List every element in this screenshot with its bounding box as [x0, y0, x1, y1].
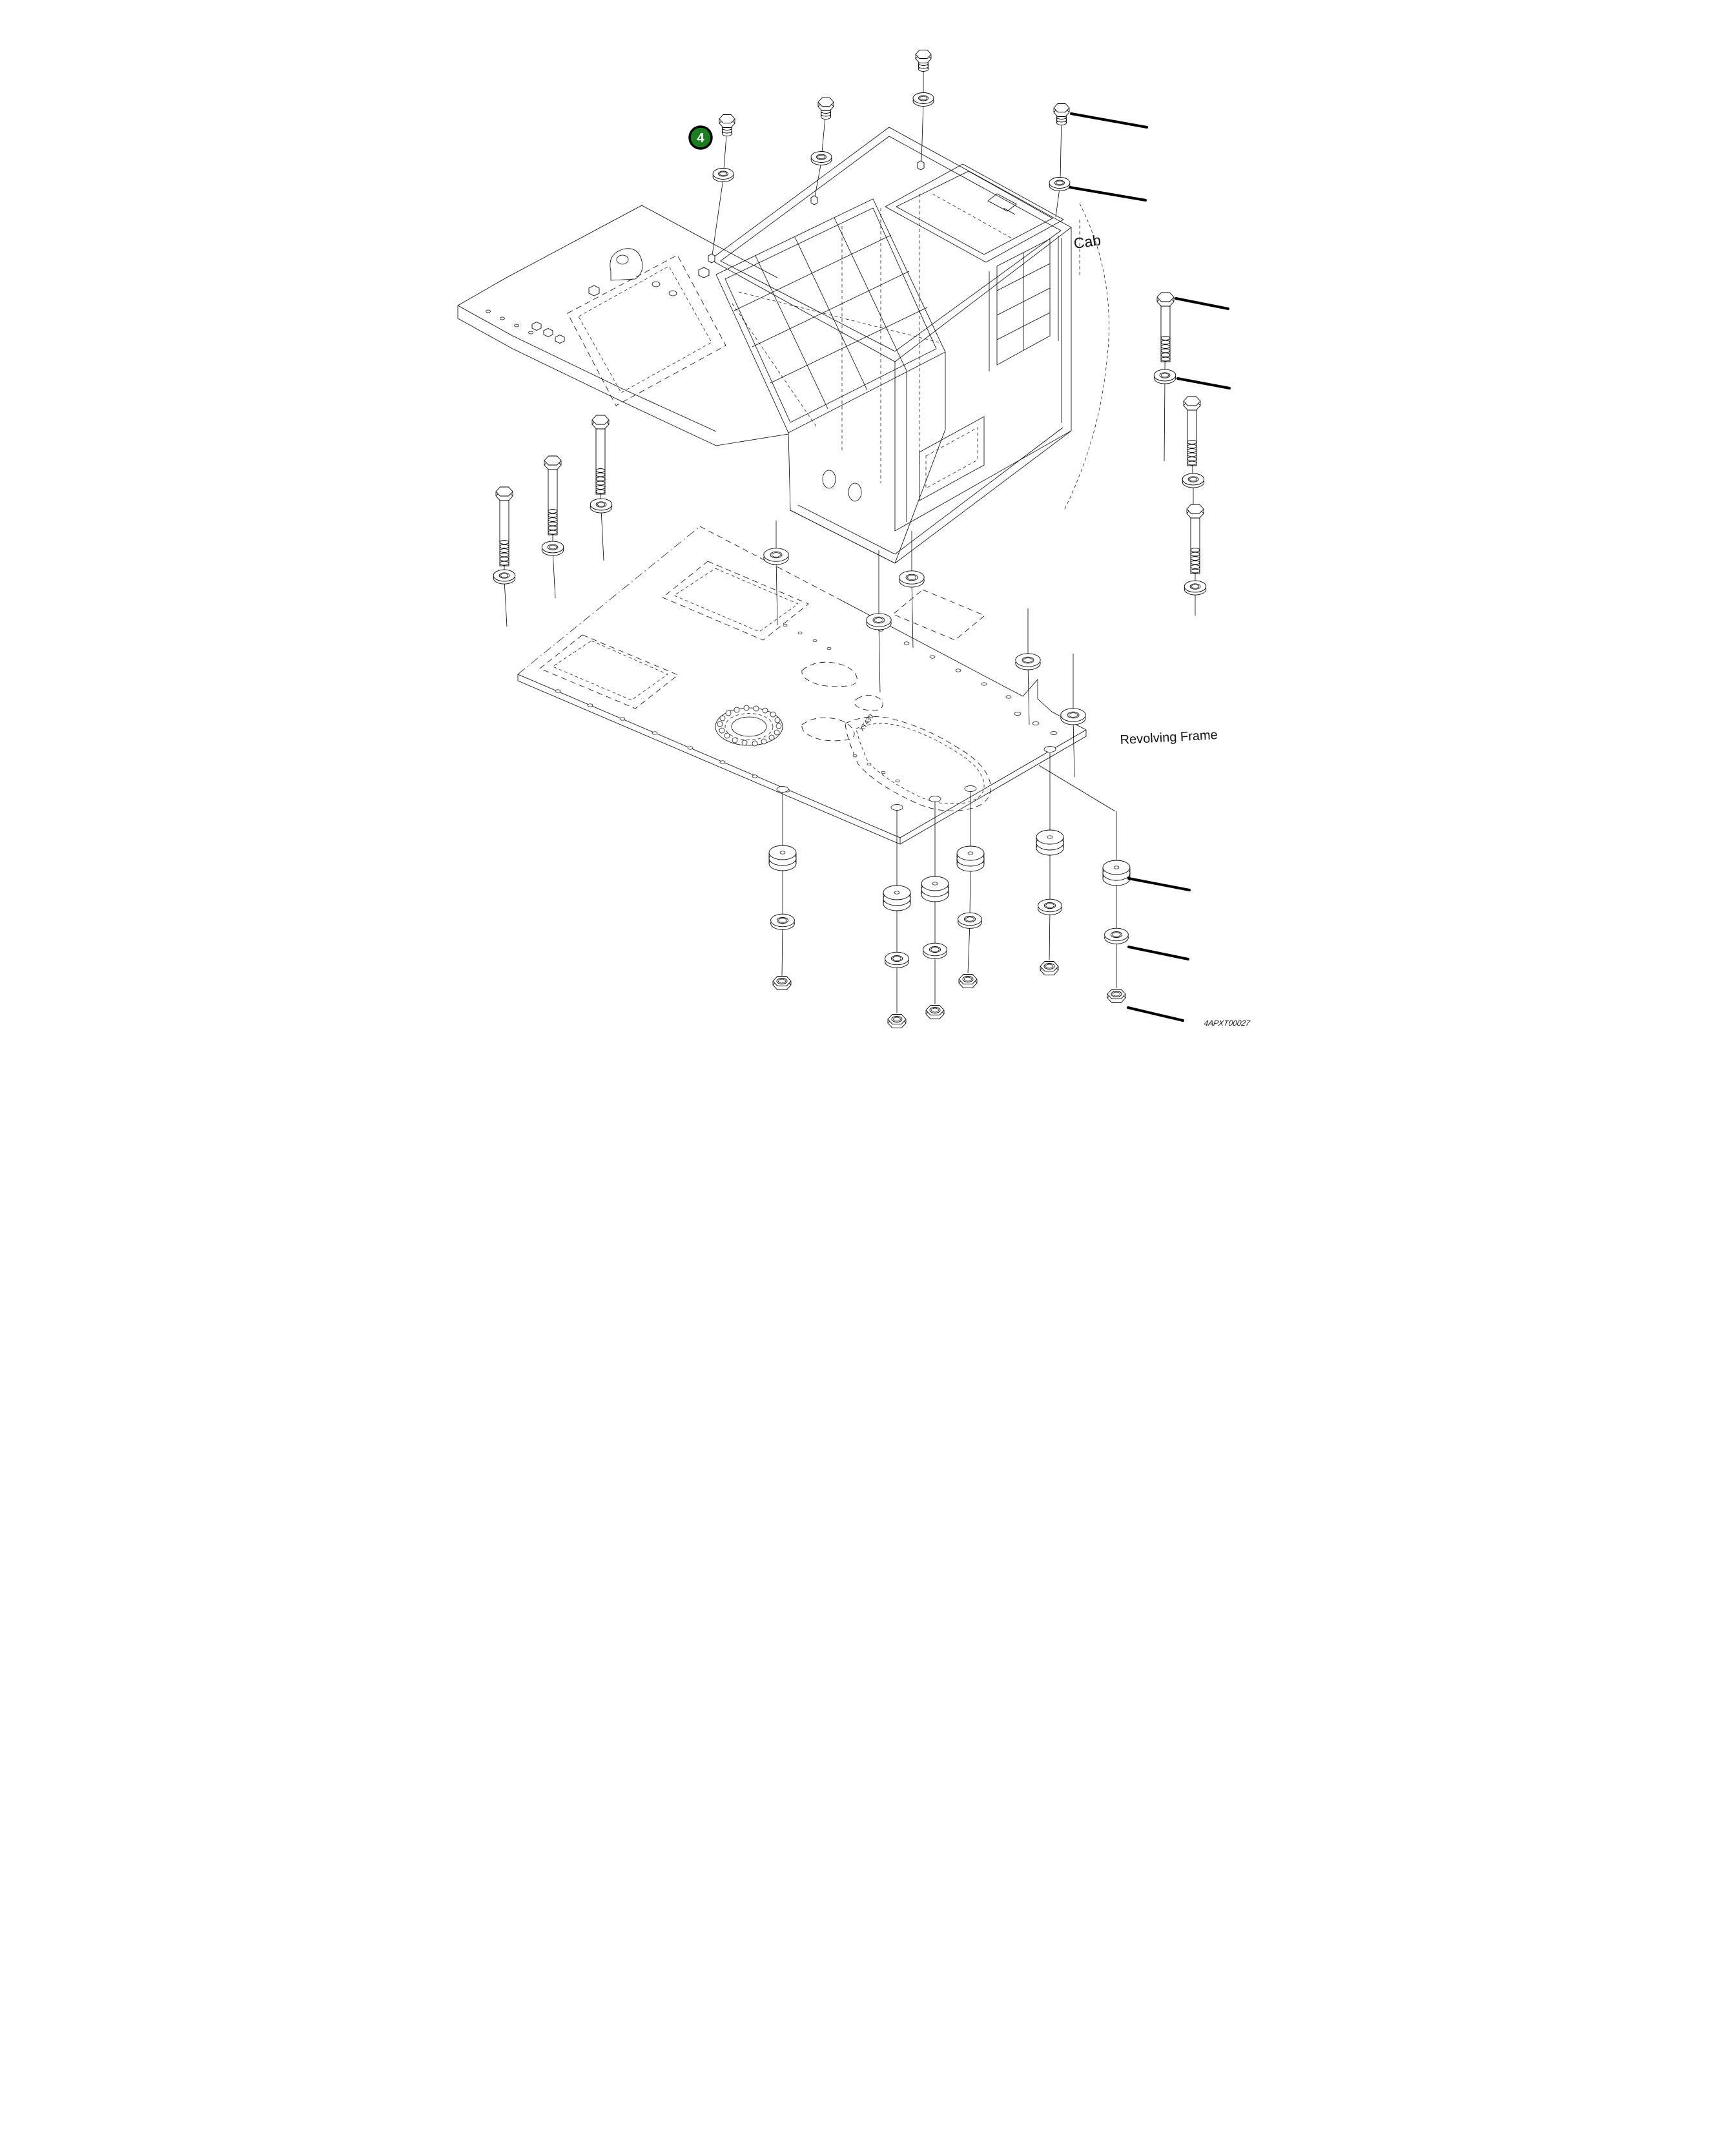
assembly-centerline — [601, 509, 604, 561]
callout-leader-line — [1129, 947, 1188, 959]
rubber-mount — [1036, 830, 1063, 855]
deck-opening — [568, 255, 726, 406]
washer — [590, 499, 612, 513]
assembly-centerline — [1073, 719, 1074, 777]
plate-cutout-center-large-inner — [856, 723, 984, 803]
plate-stamp-text: XT430 — [858, 713, 875, 733]
hex-bolt-long — [1157, 293, 1174, 362]
washer — [1154, 369, 1176, 384]
cab-door-edges — [989, 236, 1058, 371]
cab-skylight-bar — [932, 194, 1013, 239]
hex-bolt-short — [1054, 104, 1069, 125]
washer — [923, 943, 947, 959]
assembly-centerline — [1060, 116, 1062, 178]
callout-balloon-4: 4 — [690, 127, 712, 149]
plate-cutout-top-center — [893, 590, 985, 640]
rubber-mount — [769, 845, 796, 871]
deck-studs — [532, 267, 709, 344]
hex-bolt-short — [719, 115, 735, 136]
revolving-frame-label: Revolving Frame — [1120, 728, 1218, 747]
cab-hatch-bracket — [988, 194, 1016, 214]
cab-structure — [710, 127, 1109, 563]
rubber-mount — [1103, 860, 1130, 886]
callout-leader-line — [1176, 298, 1228, 309]
hex-nut — [773, 977, 791, 990]
callout-leader-line — [1128, 1008, 1183, 1021]
callout-number: 4 — [697, 131, 704, 145]
washer — [1105, 928, 1129, 944]
assembly-centerline — [968, 923, 970, 973]
washer — [542, 541, 564, 555]
assembly-centerline — [1164, 380, 1165, 461]
washer — [811, 152, 832, 165]
deck-lifting-lug — [610, 249, 642, 280]
hex-bolt-long — [592, 415, 609, 494]
plate-cutout-kidney-2 — [854, 695, 883, 710]
deck-top-edge — [458, 205, 777, 306]
washer — [899, 571, 924, 587]
drawing-number: 4APXT00027 — [1204, 1019, 1252, 1028]
hex-bolt-long — [544, 456, 561, 535]
plate-cutout-upper — [662, 561, 808, 640]
cab-floor-deck — [458, 205, 788, 446]
callout-leader-line — [1071, 114, 1147, 127]
hex-nut — [1107, 990, 1125, 1003]
cab-front-oval-1 — [823, 470, 836, 488]
deck-edge-holes — [486, 282, 677, 334]
washer — [764, 548, 788, 565]
cab-skylight-frame — [885, 164, 1063, 262]
assembly-centerline — [1049, 909, 1050, 960]
plate-edge-bottom — [518, 674, 1086, 838]
assembly-centerline — [782, 924, 783, 976]
roof-stud — [811, 196, 817, 205]
hex-bolt-long — [496, 487, 513, 566]
deck-inner-edge — [458, 306, 716, 431]
cab-front-oval-2 — [848, 483, 861, 501]
washer — [1016, 654, 1040, 670]
hex-nut — [888, 1015, 906, 1028]
washer — [713, 169, 734, 182]
washer — [1184, 581, 1206, 595]
callout-leader-line — [1129, 878, 1189, 890]
washer — [1038, 899, 1062, 915]
deck-bottom-edge — [458, 306, 788, 446]
assembly-centerline — [879, 624, 880, 692]
hex-bolt-long — [1184, 397, 1200, 466]
hex-bolt-short — [916, 50, 931, 72]
washer — [1182, 473, 1204, 488]
hex-nut — [1040, 962, 1058, 975]
diagram-page: XT430 — [429, 0, 1286, 1078]
plate-cutout-kidney-1 — [802, 662, 857, 687]
callout-leader-line — [1070, 187, 1145, 200]
assembly-centerline — [553, 552, 555, 598]
washer — [867, 614, 891, 630]
assembly-centerline — [776, 559, 777, 625]
assembly-centerline — [1056, 188, 1060, 217]
washer — [958, 913, 982, 928]
assembly-centerline — [712, 179, 723, 260]
plate-cutout-left-inner — [553, 641, 668, 700]
roof-stud — [918, 161, 924, 170]
roof-stud — [708, 254, 715, 263]
revolving-frame-plate: XT430 — [518, 526, 1086, 844]
washer — [1049, 178, 1070, 191]
slew-bearing — [715, 705, 783, 746]
callout-leader-line — [1178, 378, 1229, 388]
cab-front-lower — [788, 194, 1071, 563]
plate-cutout-kidney-3 — [802, 718, 854, 741]
assembly-centerline — [1028, 665, 1029, 725]
cab-label: Cab — [1073, 231, 1102, 252]
deck-opening-inner — [579, 266, 712, 393]
cab-front-guard-cage — [716, 199, 945, 433]
washer — [493, 570, 515, 584]
hardware-layer — [493, 50, 1206, 1028]
exploded-parts-diagram: XT430 — [429, 0, 1286, 1078]
plate-cutout-upper-inner — [674, 568, 798, 632]
washer — [771, 914, 795, 929]
washer — [913, 93, 934, 107]
rubber-mount — [883, 886, 910, 911]
deck-lug-hole — [617, 255, 628, 264]
thick-leader-layer — [1070, 114, 1229, 1021]
assembly-centerline — [814, 161, 821, 200]
rubber-mount — [957, 846, 984, 871]
connector-lines-layer — [504, 62, 1195, 1013]
assembly-centerline — [504, 580, 507, 627]
hex-bolt-short — [818, 98, 834, 119]
washer — [885, 952, 909, 968]
assembly-centerline — [921, 103, 923, 161]
washer — [1061, 709, 1085, 725]
cab-roof-outline — [710, 127, 1071, 362]
hex-nut — [926, 1006, 944, 1019]
plate-thickness — [518, 674, 1086, 844]
cab-right-side — [895, 227, 1071, 531]
rubber-mount — [921, 876, 949, 902]
hex-nut — [959, 975, 977, 988]
assembly-centerline — [970, 866, 970, 915]
plate-cutout-left — [540, 635, 678, 709]
assembly-centerline — [1039, 765, 1115, 811]
hex-bolt-long — [1187, 504, 1204, 574]
cab-roof-inner-rail — [721, 136, 1061, 351]
